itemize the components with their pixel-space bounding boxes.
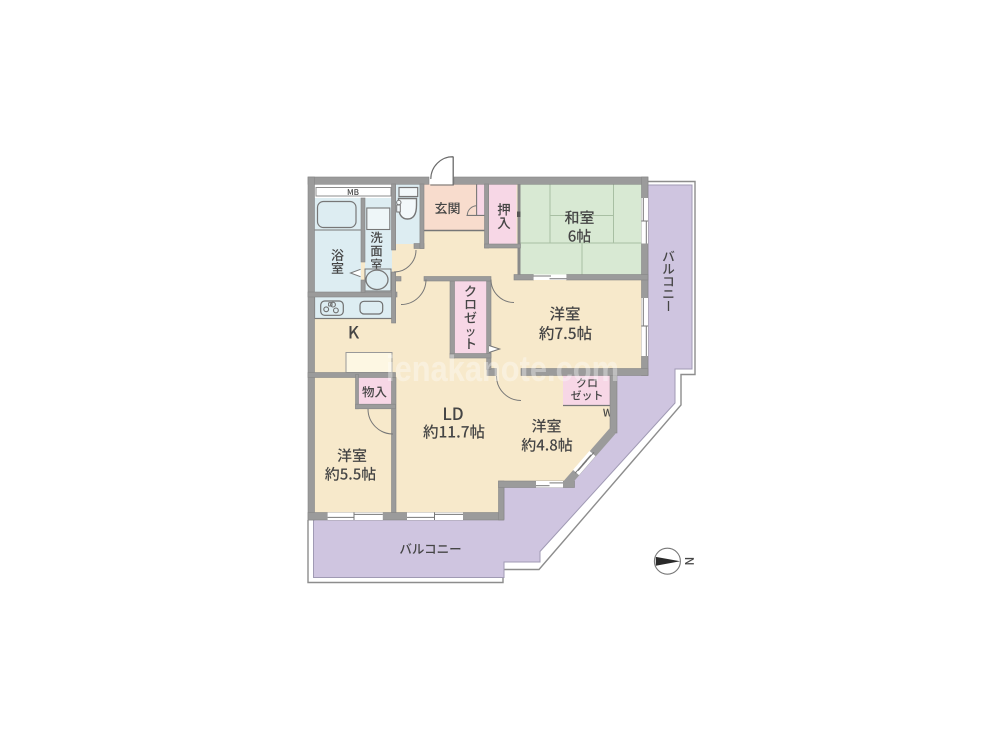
svg-text:玄関: 玄関: [434, 198, 460, 217]
svg-text:6帖: 6帖: [568, 226, 592, 247]
svg-text:物入: 物入: [362, 382, 388, 401]
svg-text:N: N: [681, 557, 698, 566]
svg-text:約11.7帖: 約11.7帖: [423, 421, 485, 443]
svg-text:ienakanote.com: ienakanote.com: [386, 348, 619, 389]
svg-text:約4.8帖: 約4.8帖: [521, 435, 573, 456]
svg-text:入: 入: [497, 212, 511, 232]
svg-text:バルコニー: バルコニー: [399, 539, 461, 558]
svg-text:約5.5帖: 約5.5帖: [325, 464, 377, 485]
svg-text:MB: MB: [347, 187, 359, 198]
svg-text:K: K: [348, 319, 360, 344]
svg-text:洋室: 洋室: [531, 416, 561, 437]
svg-text:室: 室: [331, 258, 344, 277]
svg-text:ゼット: ゼット: [571, 388, 604, 404]
svg-text:約7.5帖: 約7.5帖: [539, 322, 592, 344]
svg-text:ニ: ニ: [662, 284, 675, 303]
